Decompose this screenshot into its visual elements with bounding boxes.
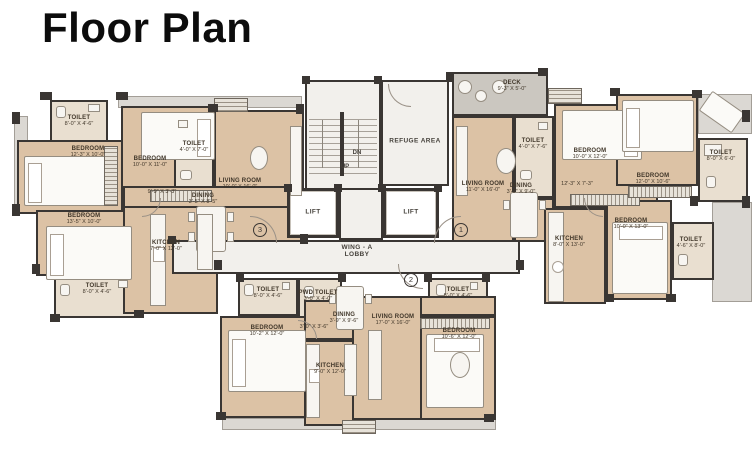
basin-fixture — [88, 104, 100, 112]
lift-lobby-floor — [339, 188, 383, 240]
wall-column — [482, 274, 490, 282]
refuge-area-label: REFUGE AREA — [389, 138, 440, 145]
wall-column — [538, 68, 548, 76]
kitchen-counter — [197, 214, 213, 270]
kitchen-counter — [150, 214, 166, 306]
room-label-living-room: LIVING ROOM17'-0" X 16'-0" — [372, 314, 415, 326]
wall-column — [484, 414, 494, 422]
room-label-living-room: LIVING ROOM10'-0" X 16'-0" — [219, 178, 262, 190]
toilet-fixture — [180, 170, 192, 180]
page-title: Floor Plan — [42, 4, 252, 52]
wall-column — [12, 112, 20, 124]
room-label-toilet: TOILET8'-0" X 6'-0" — [707, 150, 736, 162]
room-label-bedroom: BEDROOM10'-6" X 12'-0" — [442, 328, 477, 340]
bed-furniture — [622, 100, 694, 152]
stairs-up-label: UP — [341, 164, 349, 170]
wall-column — [236, 274, 244, 282]
bed-furniture — [228, 330, 306, 392]
lift-right-label: LIFT — [403, 209, 418, 216]
wall-column — [446, 72, 454, 82]
dining-chair — [539, 200, 546, 210]
room-label-bedroom: BEDROOM10'-0" X 12'-0" — [573, 148, 608, 160]
room-label-toilet: TOILET4'-6" X 8'-0" — [677, 237, 706, 249]
room-label-bedroom: BEDROOM10'-0" X 11'-0" — [133, 156, 167, 168]
unit-marker-3: 3 — [253, 223, 267, 237]
room-label-toilet: TOILET8'-0" X 4'-6" — [254, 287, 283, 299]
service-shaft — [548, 88, 582, 104]
wall-column — [12, 204, 20, 216]
wall-column — [40, 92, 52, 100]
wall-column — [116, 92, 128, 100]
wall-column — [742, 110, 750, 122]
toilet-fixture — [60, 284, 70, 296]
room-label-toilet: TOILET8'-0" X 4'-6" — [65, 115, 94, 127]
stair-arrow-line — [358, 120, 359, 168]
room-label-dining: DINING3'-5" X 8'-5" — [189, 193, 218, 205]
bed-furniture — [612, 222, 668, 294]
room-label-kitchen: KITCHEN9'-0" X 12'-0" — [314, 363, 346, 375]
unit-marker-1: 1 — [454, 223, 468, 237]
room-label-bedroom: BEDROOM12'-0" X 10'-6" — [636, 173, 671, 185]
wall-column — [434, 184, 442, 192]
deck-planter — [475, 90, 487, 102]
wall-column — [692, 90, 702, 98]
room-label-bedroom: BEDROOM10'-2" X 12'-0" — [250, 325, 285, 337]
wall-column — [296, 104, 304, 114]
kitchen-counter — [306, 344, 320, 418]
basin-fixture — [118, 280, 128, 288]
wall-column — [666, 294, 676, 302]
wall-column — [690, 196, 698, 206]
wall-column — [208, 104, 218, 112]
wall-column — [378, 184, 386, 192]
wall-column — [742, 196, 750, 208]
room-label-kitchen: KITCHEN8'-0" X 13'-0" — [553, 236, 585, 248]
wall-column — [134, 310, 144, 318]
wall-column — [604, 294, 614, 302]
room-label-living-room: LIVING ROOM11'-0" X 16'-0" — [462, 181, 505, 193]
dining-table — [510, 192, 538, 238]
deck-planter — [458, 80, 472, 94]
room-label-toilet: TOILET8'-0" X 4'-6" — [444, 287, 473, 299]
wall-column — [338, 274, 346, 282]
stairs-dn-label: DN — [353, 150, 362, 156]
wall-column — [214, 260, 222, 270]
dining-chair — [503, 200, 510, 210]
wall-column — [50, 314, 60, 322]
wardrobe — [628, 186, 692, 198]
wardrobe — [104, 146, 118, 206]
toilet-fixture — [520, 170, 532, 180]
passage-floor — [420, 296, 496, 316]
basin-fixture — [538, 122, 548, 130]
deck-floor — [452, 72, 548, 116]
dining-chair — [365, 294, 372, 304]
room-label-pwd-toilet: PWD TOILET3'-0" X 4'-0" — [299, 290, 338, 302]
toilet-fixture — [678, 254, 688, 266]
room-label-toilet: TOILET4'-0" X 7'-0" — [180, 141, 209, 153]
wall-column — [334, 184, 342, 192]
room-label-passage: 3'-0" X 3'-6" — [300, 324, 329, 330]
wing-lobby-label: WING - ALOBBY — [341, 244, 372, 258]
room-label-dining: DINING3'-9" X 9'-6" — [330, 312, 359, 324]
floor-plan-page: { "title": "Floor Plan", "colors": { "ro… — [0, 0, 752, 456]
room-label-deck: DECK9'-3" X 5'-0" — [498, 80, 527, 92]
stair-arrow-line — [322, 120, 323, 168]
room-label-bedroom: BEDROOM10'-0" X 13'-0" — [614, 218, 649, 230]
toilet-fixture — [244, 284, 254, 296]
kitchen-counter — [548, 212, 564, 302]
armchair — [496, 148, 516, 174]
service-duct — [342, 420, 376, 434]
basin-fixture — [282, 282, 290, 290]
armchair — [250, 146, 268, 170]
room-label-toilet: TOILET4'-0" X 7'-6" — [519, 138, 548, 150]
wall-column — [610, 88, 620, 96]
dining-chair — [188, 232, 195, 242]
bed-furniture — [24, 156, 106, 206]
toilet-floor — [672, 222, 714, 280]
bed-furniture — [46, 226, 132, 280]
wall-column — [284, 184, 292, 192]
wall-column — [374, 76, 382, 84]
room-label-dining: DINING3'-9" X 9'-0" — [507, 183, 536, 195]
room-label-kitchen: KITCHEN7'-0" X 12'-0" — [150, 240, 182, 252]
sofa — [368, 330, 382, 400]
lift-left-label: LIFT — [305, 209, 320, 216]
toilet-fixture — [706, 176, 716, 188]
wall-column — [424, 274, 432, 282]
room-label-passage: 12'-3" X 7'-3" — [561, 181, 593, 187]
room-label-bedroom: BEDROOM12'-3" X 10'-0" — [71, 146, 106, 158]
room-label-bedroom: BEDROOM13'-5" X 10'-0" — [67, 213, 102, 225]
room-label-passage: 9'-9" X 3'-3" — [148, 189, 177, 195]
service-shaft — [214, 98, 248, 112]
unit-marker-2: 2 — [404, 273, 418, 287]
wall-column — [302, 76, 310, 84]
basin-fixture — [178, 120, 188, 128]
wall-column — [300, 234, 308, 244]
armchair — [450, 352, 470, 378]
dining-chair — [188, 212, 195, 222]
wall-column — [216, 412, 226, 420]
room-label-toilet: TOILET8'-0" X 4'-6" — [83, 283, 112, 295]
dining-chair — [227, 232, 234, 242]
wall-column — [516, 260, 524, 270]
ledge-strip-right-edge — [712, 202, 752, 302]
wall-column — [32, 264, 40, 274]
dining-chair — [227, 212, 234, 222]
